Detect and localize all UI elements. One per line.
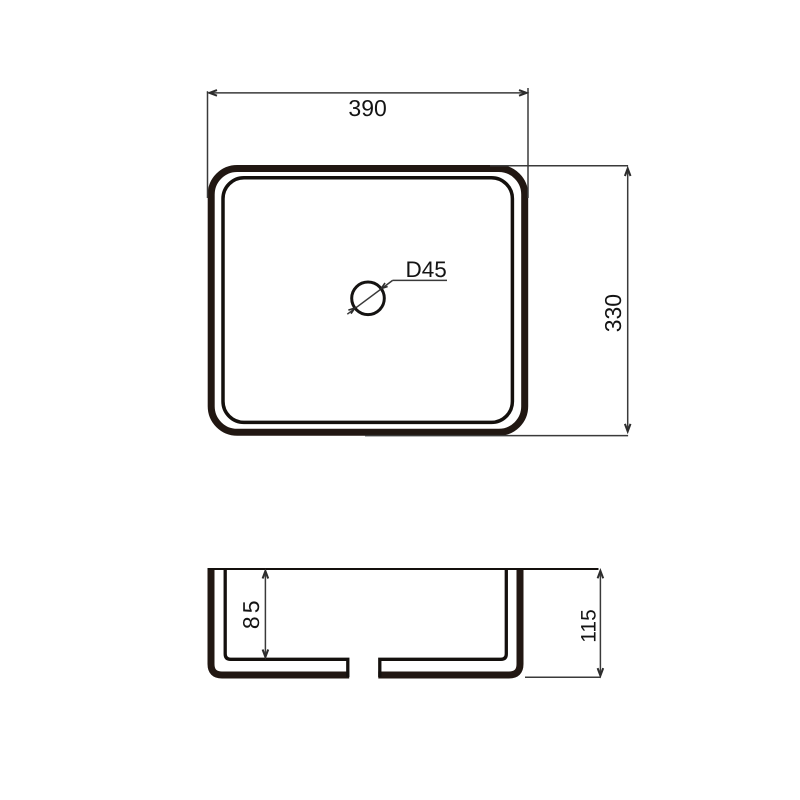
svg-text:330: 330	[600, 294, 626, 332]
svg-text:85: 85	[238, 598, 264, 630]
svg-text:390: 390	[348, 95, 386, 121]
svg-text:D45: D45	[406, 257, 447, 282]
svg-text:115: 115	[577, 609, 600, 642]
